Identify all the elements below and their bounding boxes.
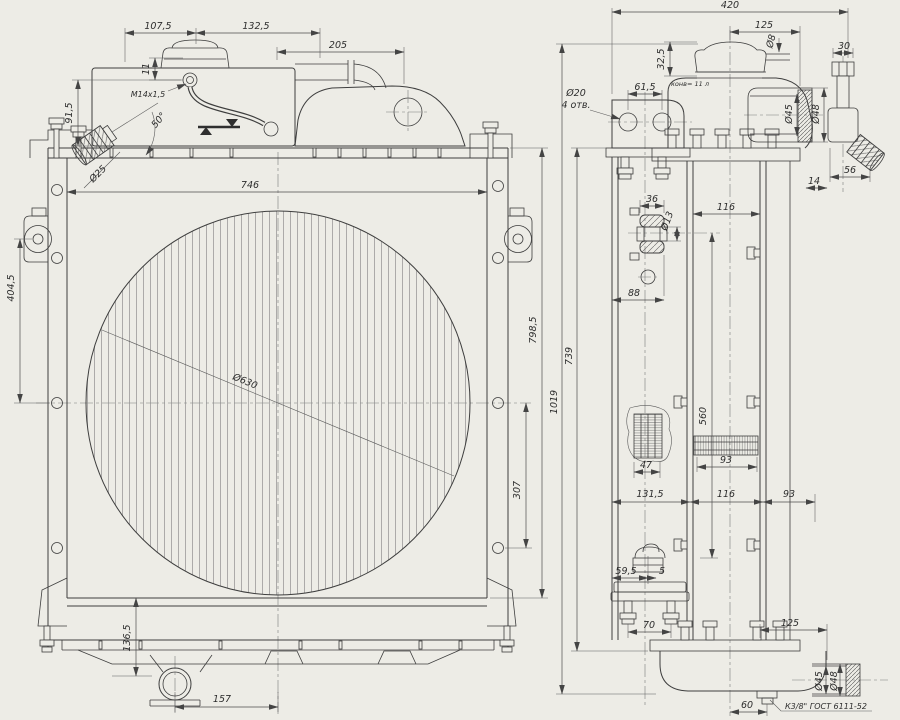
dim-5: 5 xyxy=(659,566,665,577)
dim-88: 88 xyxy=(628,288,640,299)
dim-560: 560 xyxy=(698,407,709,425)
dim-91-5: 91,5 xyxy=(64,102,75,123)
fin-block-detail xyxy=(627,405,672,461)
side-top-outlet xyxy=(748,88,812,142)
dim-420: 420 xyxy=(721,0,739,11)
dim-48-bottom: Ø48 xyxy=(829,671,840,692)
dim-bush-hole-13: Ø13 xyxy=(659,210,676,233)
dim-48-top: Ø48 xyxy=(811,104,822,125)
note-capacity: конв= 11 л xyxy=(671,80,709,88)
dim-11: 11 xyxy=(141,63,152,75)
dim-56: 56 xyxy=(844,165,856,176)
dim-746: 746 xyxy=(241,180,259,191)
dim-107-5: 107,5 xyxy=(144,21,171,32)
dim-36: 36 xyxy=(646,194,658,205)
drain-plug-detail xyxy=(611,544,689,624)
top-tank xyxy=(92,40,295,146)
dim-157: 157 xyxy=(213,694,231,705)
side-top-fitting xyxy=(828,62,886,172)
dim-hose-25: Ø25 xyxy=(87,163,109,185)
dim-61-5: 61,5 xyxy=(634,82,655,93)
dim-overflow-8: Ø8 xyxy=(764,33,778,50)
dim-32-5: 32,5 xyxy=(656,48,667,69)
dim-14: 14 xyxy=(808,176,820,187)
side-top-bracket xyxy=(606,100,690,179)
dim-125-bottom: 125 xyxy=(781,618,799,629)
dim-47: 47 xyxy=(640,460,652,471)
lower-right-bracket xyxy=(487,578,516,652)
left-mount-bracket xyxy=(24,208,52,262)
dim-125-top: 125 xyxy=(755,20,773,31)
dim-307: 307 xyxy=(512,481,523,499)
side-dimensions: 420 125 32,5 Ø8 30 61,5 Ø20 4 отв. 1019 … xyxy=(549,0,872,716)
radiator-drawing: 107,5 132,5 205 11 М14х1,5 91,5 50° Ø25 … xyxy=(0,0,900,720)
dim-45-top: Ø45 xyxy=(784,104,795,125)
dim-136-5: 136,5 xyxy=(122,624,133,651)
drawing-sheet: 107,5 132,5 205 11 М14х1,5 91,5 50° Ø25 … xyxy=(0,0,900,720)
dim-798-5: 798,5 xyxy=(528,316,539,343)
dim-205: 205 xyxy=(329,40,347,51)
label-filler-thread: М14х1,5 xyxy=(131,90,166,99)
note-drain-thread: К3/8" ГОСТ 6111-52 xyxy=(785,702,867,711)
filler-boss xyxy=(183,73,197,87)
side-filler-cap xyxy=(695,42,766,72)
dim-739: 739 xyxy=(564,347,575,365)
dim-116-bottom: 116 xyxy=(717,489,735,500)
dim-132-5: 132,5 xyxy=(242,21,269,32)
dim-30: 30 xyxy=(838,41,850,52)
dim-1019: 1019 xyxy=(549,390,560,414)
tube-end-ball xyxy=(264,122,278,136)
dim-131-5: 131,5 xyxy=(636,489,663,500)
dim-45-bottom: Ø45 xyxy=(814,671,825,692)
right-mount-bracket xyxy=(505,208,533,262)
label-hole-dia-20: Ø20 xyxy=(565,88,586,99)
dim-59-5: 59,5 xyxy=(615,566,636,577)
bottom-tank xyxy=(78,641,462,706)
label-4-holes: 4 отв. xyxy=(561,100,590,111)
dim-60: 60 xyxy=(741,700,753,711)
top-right-bracket xyxy=(470,122,512,158)
dim-70: 70 xyxy=(643,620,655,631)
dim-93-mid: 93 xyxy=(720,455,732,466)
front-view xyxy=(24,40,532,714)
dim-93-bottom: 93 xyxy=(783,489,795,500)
dim-116-top: 116 xyxy=(717,202,735,213)
dim-404-5: 404,5 xyxy=(6,274,17,301)
inlet-housing xyxy=(110,60,465,157)
side-view: конв= 11 л xyxy=(606,30,888,716)
lower-left-bracket xyxy=(38,578,67,652)
tube-row-detail xyxy=(694,436,758,455)
